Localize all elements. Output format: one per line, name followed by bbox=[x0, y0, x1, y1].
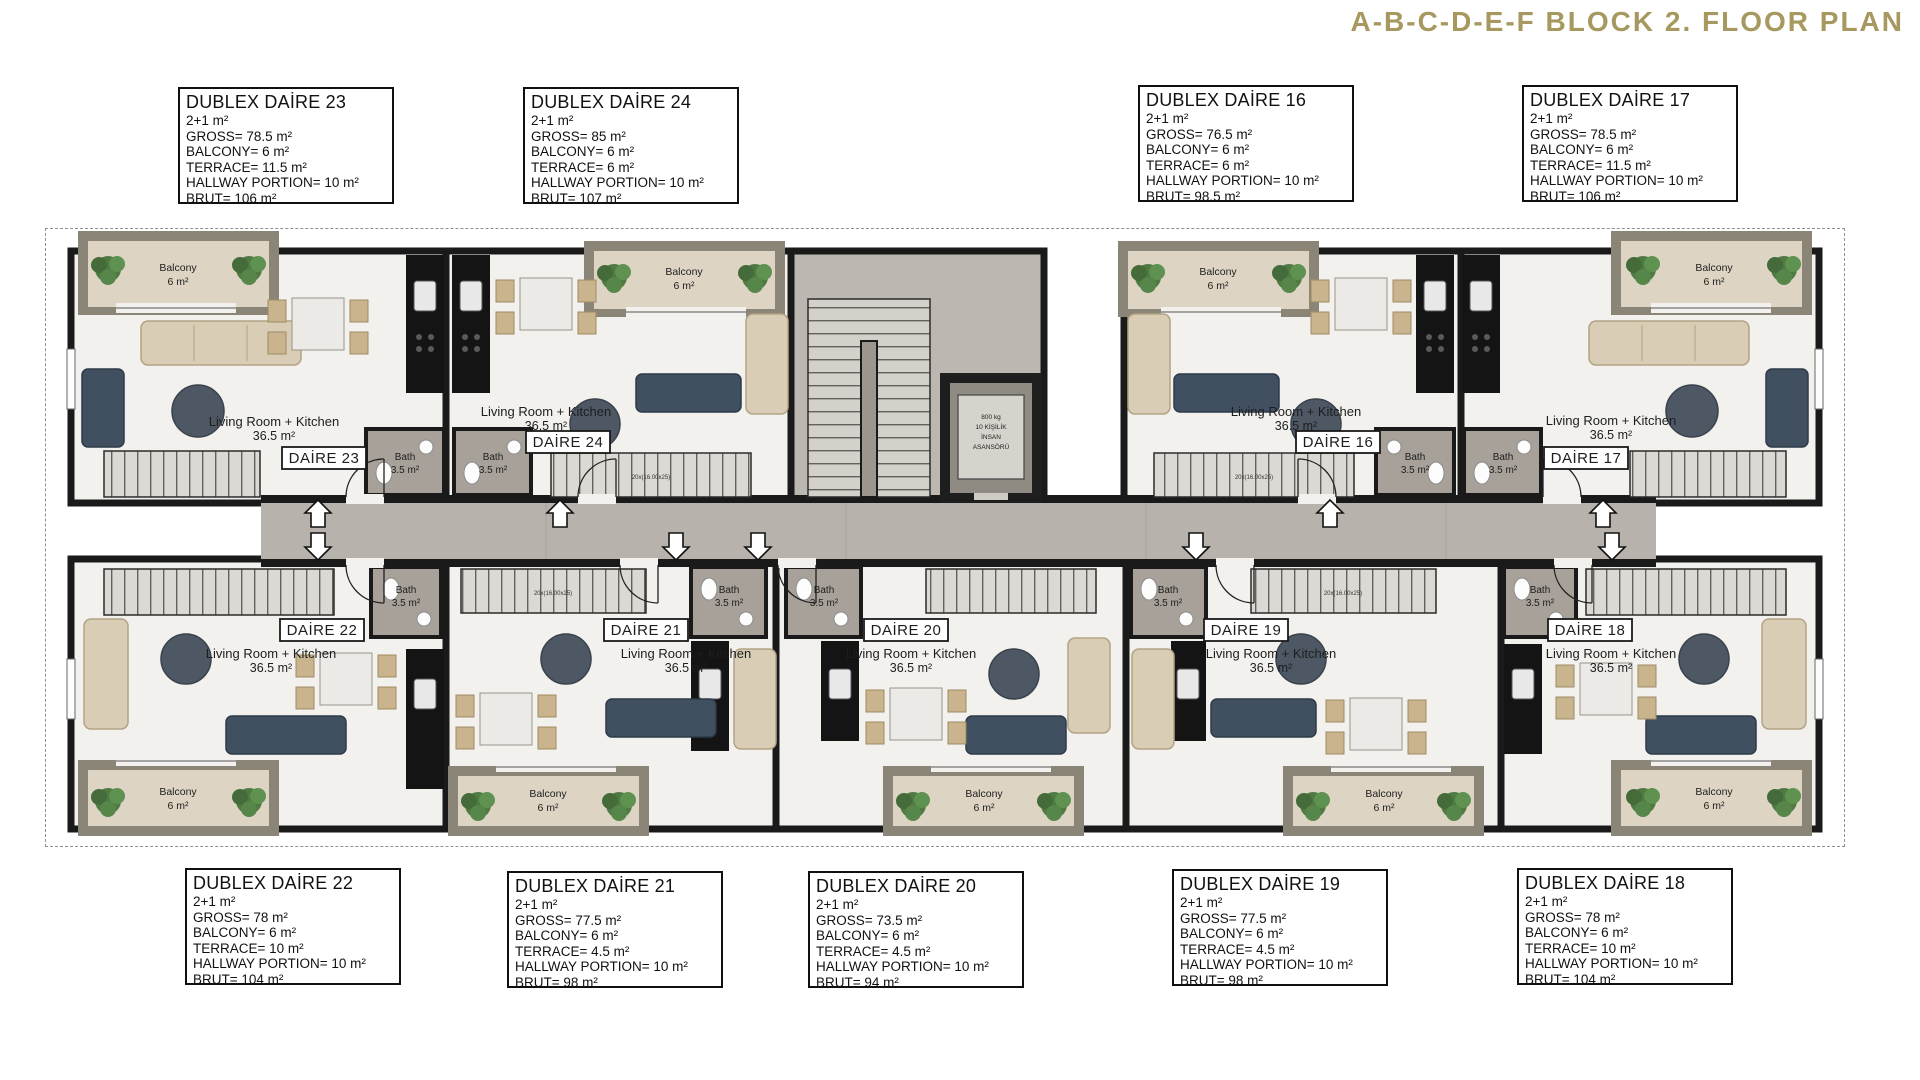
balcony-area: 6 m² bbox=[1208, 280, 1230, 292]
page-title: A-B-C-D-E-F BLOCK 2. FLOOR PLAN bbox=[1350, 6, 1904, 38]
balcony-area: 6 m² bbox=[1374, 802, 1396, 814]
sofa bbox=[1128, 314, 1170, 414]
info-line: BALCONY= 6 m² bbox=[186, 144, 386, 160]
bath-area: 3.5 m² bbox=[1401, 465, 1430, 476]
sofa bbox=[1589, 321, 1749, 365]
info-title: DUBLEX DAİRE 22 bbox=[193, 873, 393, 894]
unit-label: DAİRE 17 bbox=[1551, 449, 1622, 467]
toilet-icon bbox=[1474, 462, 1490, 484]
info-line: TERRACE= 4.5 m² bbox=[816, 944, 1016, 960]
info-box-daire-19: DUBLEX DAİRE 19 2+1 m² GROSS= 77.5 m² BA… bbox=[1172, 869, 1388, 986]
balcony-label: Balcony bbox=[1695, 262, 1733, 274]
room-area: 36.5 m² bbox=[890, 661, 932, 675]
balcony-24 bbox=[584, 241, 785, 317]
room-label: Living Room + Kitchen bbox=[481, 404, 611, 419]
unit-label: DAİRE 23 bbox=[289, 449, 360, 467]
balcony-area: 6 m² bbox=[1704, 800, 1726, 812]
info-box-daire-18: DUBLEX DAİRE 18 2+1 m² GROSS= 78 m² BALC… bbox=[1517, 868, 1733, 985]
room-area: 36.5 m² bbox=[665, 661, 707, 675]
room-label: Living Room + Kitchen bbox=[1231, 404, 1361, 419]
bath-area: 3.5 m² bbox=[479, 465, 508, 476]
info-line: BRUT= 106 m² bbox=[186, 191, 386, 207]
info-line: 2+1 m² bbox=[515, 897, 715, 913]
corridor-wall-bottom bbox=[261, 559, 1656, 567]
sofa bbox=[1762, 619, 1806, 729]
elevator-door bbox=[974, 493, 1008, 500]
kitchen-16 bbox=[1416, 255, 1454, 393]
info-line: BALCONY= 6 m² bbox=[531, 144, 731, 160]
balcony-label: Balcony bbox=[1199, 266, 1237, 278]
elevator-label: 10 KİŞİLİK bbox=[975, 422, 1007, 431]
info-box-daire-20: DUBLEX DAİRE 20 2+1 m² GROSS= 73.5 m² BA… bbox=[808, 871, 1024, 988]
bath-area: 3.5 m² bbox=[391, 465, 420, 476]
info-line: BRUT= 104 m² bbox=[1525, 972, 1725, 988]
bath-area: 3.5 m² bbox=[1526, 598, 1555, 609]
info-title: DUBLEX DAİRE 20 bbox=[816, 876, 1016, 897]
kitchen-23 bbox=[406, 255, 444, 393]
coffee-table bbox=[172, 385, 224, 437]
unit-label: DAİRE 19 bbox=[1211, 621, 1282, 639]
elevator-label: 800 kg bbox=[981, 414, 1001, 421]
corridor bbox=[261, 495, 1656, 567]
info-line: GROSS= 78 m² bbox=[193, 910, 393, 926]
room-area: 36.5 m² bbox=[253, 429, 295, 443]
sink-icon bbox=[834, 612, 848, 626]
balcony-label: Balcony bbox=[529, 788, 567, 800]
sofa bbox=[1068, 638, 1110, 733]
window bbox=[67, 659, 75, 719]
info-line: BALCONY= 6 m² bbox=[816, 928, 1016, 944]
sink-icon bbox=[1179, 612, 1193, 626]
kitchen-24 bbox=[452, 255, 490, 393]
bath-label: Bath bbox=[483, 452, 504, 463]
sofa bbox=[82, 369, 124, 447]
stair-spine-wall bbox=[861, 341, 877, 497]
balcony-area: 6 m² bbox=[168, 800, 190, 812]
sofa bbox=[1211, 699, 1316, 737]
sofa bbox=[1766, 369, 1808, 447]
info-line: GROSS= 78.5 m² bbox=[186, 129, 386, 145]
room-label: Living Room + Kitchen bbox=[209, 414, 339, 429]
sink-icon bbox=[507, 440, 521, 454]
kitchen-18 bbox=[1504, 644, 1542, 754]
stair-dimension-note: 20x(16.00x25) bbox=[1235, 475, 1273, 481]
info-line: HALLWAY PORTION= 10 m² bbox=[186, 175, 386, 191]
floor-plan-canvas: 800 kg 10 KİŞİLİK İNSAN ASANSÖRÜ 20x(16.… bbox=[45, 228, 1845, 847]
coffee-table bbox=[161, 634, 211, 684]
info-title: DUBLEX DAİRE 19 bbox=[1180, 874, 1380, 895]
info-line: HALLWAY PORTION= 10 m² bbox=[515, 959, 715, 975]
info-title: DUBLEX DAİRE 24 bbox=[531, 92, 731, 113]
room-label: Living Room + Kitchen bbox=[1546, 413, 1676, 428]
toilet-icon bbox=[464, 462, 480, 484]
bath-label: Bath bbox=[396, 585, 417, 596]
info-line: TERRACE= 10 m² bbox=[1525, 941, 1725, 957]
info-line: GROSS= 85 m² bbox=[531, 129, 731, 145]
toilet-icon bbox=[1514, 578, 1530, 600]
bath-label: Bath bbox=[1405, 452, 1426, 463]
info-line: HALLWAY PORTION= 10 m² bbox=[1180, 957, 1380, 973]
floor-plan-drawing: 800 kg 10 KİŞİLİK İNSAN ASANSÖRÜ 20x(16.… bbox=[46, 229, 1844, 846]
balcony-area: 6 m² bbox=[674, 280, 696, 292]
info-line: HALLWAY PORTION= 10 m² bbox=[1525, 956, 1725, 972]
room-area: 36.5 m² bbox=[1250, 661, 1292, 675]
info-box-daire-23: DUBLEX DAİRE 23 2+1 m² GROSS= 78.5 m² BA… bbox=[178, 87, 394, 204]
balcony-16 bbox=[1118, 241, 1319, 317]
info-line: 2+1 m² bbox=[186, 113, 386, 129]
sofa bbox=[966, 716, 1066, 754]
stairs-unit-17 bbox=[1630, 451, 1786, 497]
balcony-label: Balcony bbox=[965, 788, 1003, 800]
stairs-unit-20 bbox=[926, 569, 1096, 613]
coffee-table bbox=[541, 634, 591, 684]
info-line: 2+1 m² bbox=[1146, 111, 1346, 127]
unit-label: DAİRE 16 bbox=[1303, 433, 1374, 451]
window bbox=[1815, 349, 1823, 409]
kitchen-22 bbox=[406, 649, 444, 789]
balcony-area: 6 m² bbox=[538, 802, 560, 814]
info-line: GROSS= 78 m² bbox=[1525, 910, 1725, 926]
unit-label: DAİRE 21 bbox=[611, 621, 682, 639]
bath-area: 3.5 m² bbox=[810, 598, 839, 609]
room-area: 36.5 m² bbox=[1590, 428, 1632, 442]
sink-icon bbox=[419, 440, 433, 454]
info-line: BALCONY= 6 m² bbox=[1530, 142, 1730, 158]
balcony-label: Balcony bbox=[159, 786, 197, 798]
info-line: GROSS= 78.5 m² bbox=[1530, 127, 1730, 143]
info-line: 2+1 m² bbox=[1525, 894, 1725, 910]
bath-label: Bath bbox=[719, 585, 740, 596]
bath-label: Bath bbox=[395, 452, 416, 463]
window bbox=[67, 349, 75, 409]
coffee-table bbox=[1666, 385, 1718, 437]
info-line: 2+1 m² bbox=[1530, 111, 1730, 127]
info-line: BALCONY= 6 m² bbox=[1525, 925, 1725, 941]
bath-label: Bath bbox=[1493, 452, 1514, 463]
floor-plan-page: A-B-C-D-E-F BLOCK 2. FLOOR PLAN DUBLEX D… bbox=[0, 0, 1920, 1080]
bath-area: 3.5 m² bbox=[392, 598, 421, 609]
room-area: 36.5 m² bbox=[1590, 661, 1632, 675]
info-title: DUBLEX DAİRE 16 bbox=[1146, 90, 1346, 111]
unit-label: DAİRE 22 bbox=[287, 621, 358, 639]
sofa bbox=[84, 619, 128, 729]
info-line: 2+1 m² bbox=[193, 894, 393, 910]
room-label: Living Room + Kitchen bbox=[1206, 646, 1336, 661]
toilet-icon bbox=[701, 578, 717, 600]
bath-label: Bath bbox=[1158, 585, 1179, 596]
info-box-daire-24: DUBLEX DAİRE 24 2+1 m² GROSS= 85 m² BALC… bbox=[523, 87, 739, 204]
info-line: HALLWAY PORTION= 10 m² bbox=[816, 959, 1016, 975]
info-box-daire-16: DUBLEX DAİRE 16 2+1 m² GROSS= 76.5 m² BA… bbox=[1138, 85, 1354, 202]
stairs-unit-23 bbox=[104, 451, 260, 497]
info-line: 2+1 m² bbox=[816, 897, 1016, 913]
info-title: DUBLEX DAİRE 17 bbox=[1530, 90, 1730, 111]
sofa bbox=[636, 374, 741, 412]
bath-area: 3.5 m² bbox=[1489, 465, 1518, 476]
info-line: HALLWAY PORTION= 10 m² bbox=[193, 956, 393, 972]
sink-icon bbox=[1517, 440, 1531, 454]
info-box-daire-22: DUBLEX DAİRE 22 2+1 m² GROSS= 78 m² BALC… bbox=[185, 868, 401, 985]
stairs-unit-18 bbox=[1586, 569, 1786, 615]
info-title: DUBLEX DAİRE 21 bbox=[515, 876, 715, 897]
info-line: HALLWAY PORTION= 10 m² bbox=[1530, 173, 1730, 189]
info-line: BRUT= 98 m² bbox=[515, 975, 715, 991]
stair-dimension-note: 20x(16.00x25) bbox=[1324, 591, 1362, 597]
info-line: BALCONY= 6 m² bbox=[1146, 142, 1346, 158]
sink-icon bbox=[417, 612, 431, 626]
window bbox=[1815, 659, 1823, 719]
stair-dimension-note: 20x(16.00x25) bbox=[632, 475, 670, 481]
bath-area: 3.5 m² bbox=[1154, 598, 1183, 609]
info-line: BALCONY= 6 m² bbox=[1180, 926, 1380, 942]
info-title: DUBLEX DAİRE 18 bbox=[1525, 873, 1725, 894]
info-line: BRUT= 104 m² bbox=[193, 972, 393, 988]
bath-label: Bath bbox=[1530, 585, 1551, 596]
info-line: GROSS= 77.5 m² bbox=[1180, 911, 1380, 927]
info-line: HALLWAY PORTION= 10 m² bbox=[1146, 173, 1346, 189]
balcony-label: Balcony bbox=[1695, 786, 1733, 798]
sink-icon bbox=[739, 612, 753, 626]
toilet-icon bbox=[1428, 462, 1444, 484]
elevator-label: İNSAN bbox=[981, 432, 1001, 441]
sofa bbox=[746, 314, 788, 414]
room-label: Living Room + Kitchen bbox=[1546, 646, 1676, 661]
bath-label: Bath bbox=[814, 585, 835, 596]
info-line: BRUT= 106 m² bbox=[1530, 189, 1730, 205]
info-line: TERRACE= 11.5 m² bbox=[1530, 158, 1730, 174]
balcony-label: Balcony bbox=[665, 266, 703, 278]
kitchen-19 bbox=[1171, 641, 1206, 741]
balcony-area: 6 m² bbox=[1704, 276, 1726, 288]
elevator: 800 kg 10 KİŞİLİK İNSAN ASANSÖRÜ bbox=[940, 373, 1042, 503]
info-line: TERRACE= 6 m² bbox=[1146, 158, 1346, 174]
unit-label: DAİRE 24 bbox=[533, 433, 604, 451]
balcony-area: 6 m² bbox=[974, 802, 996, 814]
unit-label: DAİRE 20 bbox=[871, 621, 942, 639]
info-line: TERRACE= 6 m² bbox=[531, 160, 731, 176]
kitchen-17 bbox=[1462, 255, 1500, 393]
stair-dimension-note: 20x(16.00x25) bbox=[534, 591, 572, 597]
info-line: BRUT= 94 m² bbox=[816, 975, 1016, 991]
room-label: Living Room + Kitchen bbox=[206, 646, 336, 661]
unit-label: DAİRE 18 bbox=[1555, 621, 1626, 639]
balcony-label: Balcony bbox=[159, 262, 197, 274]
coffee-table bbox=[989, 649, 1039, 699]
info-box-daire-17: DUBLEX DAİRE 17 2+1 m² GROSS= 78.5 m² BA… bbox=[1522, 85, 1738, 202]
info-line: BALCONY= 6 m² bbox=[193, 925, 393, 941]
info-line: BALCONY= 6 m² bbox=[515, 928, 715, 944]
info-line: TERRACE= 10 m² bbox=[193, 941, 393, 957]
info-box-daire-21: DUBLEX DAİRE 21 2+1 m² GROSS= 77.5 m² BA… bbox=[507, 871, 723, 988]
sink-icon bbox=[1387, 440, 1401, 454]
sofa bbox=[226, 716, 346, 754]
info-line: BRUT= 107 m² bbox=[531, 191, 731, 207]
info-line: BRUT= 98 m² bbox=[1180, 973, 1380, 989]
sofa bbox=[1646, 716, 1756, 754]
sofa bbox=[1132, 649, 1174, 749]
sofa bbox=[734, 649, 776, 749]
info-line: 2+1 m² bbox=[1180, 895, 1380, 911]
info-line: TERRACE= 4.5 m² bbox=[515, 944, 715, 960]
bath-area: 3.5 m² bbox=[715, 598, 744, 609]
info-line: GROSS= 76.5 m² bbox=[1146, 127, 1346, 143]
info-line: TERRACE= 4.5 m² bbox=[1180, 942, 1380, 958]
sofa bbox=[606, 699, 716, 737]
balcony-area: 6 m² bbox=[168, 276, 190, 288]
info-line: TERRACE= 11.5 m² bbox=[186, 160, 386, 176]
toilet-icon bbox=[796, 578, 812, 600]
room-label: Living Room + Kitchen bbox=[621, 646, 751, 661]
info-line: HALLWAY PORTION= 10 m² bbox=[531, 175, 731, 191]
elevator-label: ASANSÖRÜ bbox=[973, 443, 1010, 451]
info-title: DUBLEX DAİRE 23 bbox=[186, 92, 386, 113]
info-line: BRUT= 98.5 m² bbox=[1146, 189, 1346, 205]
stairs-unit-22 bbox=[104, 569, 334, 615]
coffee-table bbox=[1679, 634, 1729, 684]
room-area: 36.5 m² bbox=[250, 661, 292, 675]
info-line: GROSS= 73.5 m² bbox=[816, 913, 1016, 929]
info-line: GROSS= 77.5 m² bbox=[515, 913, 715, 929]
toilet-icon bbox=[1141, 578, 1157, 600]
balcony-label: Balcony bbox=[1365, 788, 1403, 800]
info-line: 2+1 m² bbox=[531, 113, 731, 129]
room-label: Living Room + Kitchen bbox=[846, 646, 976, 661]
